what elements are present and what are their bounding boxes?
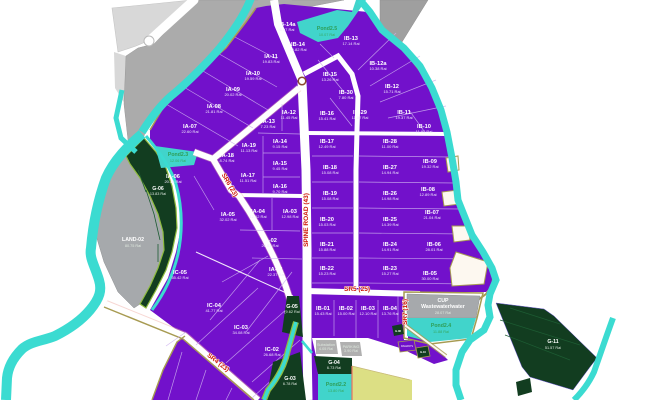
svg-text:19.32 Rai: 19.32 Rai — [421, 164, 438, 169]
svg-text:12.89 Rai: 12.89 Rai — [419, 192, 436, 197]
svg-text:9.70 Rai: 9.70 Rai — [273, 189, 288, 194]
svg-text:21.81 Rai: 21.81 Rai — [205, 109, 222, 114]
svg-text:15.23 Rai: 15.23 Rai — [318, 271, 335, 276]
svg-text:15.41 Rai: 15.41 Rai — [318, 116, 335, 121]
svg-text:9.15 Rai: 9.15 Rai — [273, 144, 288, 149]
svg-text:6.78 Rai: 6.78 Rai — [283, 382, 297, 386]
svg-text:15.71 Rai: 15.71 Rai — [383, 89, 400, 94]
svg-text:7.80 Rai: 7.80 Rai — [339, 95, 354, 100]
svg-text:12.62 Rai: 12.62 Rai — [249, 214, 266, 219]
svg-text:Pond2.5: Pond2.5 — [317, 26, 337, 32]
svg-text:10.07 Rai: 10.07 Rai — [319, 33, 335, 37]
svg-text:15.03 Rai: 15.03 Rai — [318, 222, 335, 227]
svg-text:7.23 Rai: 7.23 Rai — [261, 124, 276, 129]
svg-text:11.45 Rai: 11.45 Rai — [281, 115, 298, 120]
svg-text:Pond2.4: Pond2.4 — [431, 323, 451, 329]
svg-text:20.03 Rai: 20.03 Rai — [261, 243, 278, 248]
svg-text:21.04 Rai: 21.04 Rai — [423, 215, 440, 220]
svg-text:12.10 Rai: 12.10 Rai — [359, 311, 376, 316]
svg-text:Pond2.3: Pond2.3 — [168, 152, 188, 158]
svg-text:SR7 (16): SR7 (16) — [402, 299, 409, 325]
svg-text:G-10: G-10 — [420, 350, 426, 354]
svg-text:G-08: G-08 — [395, 329, 401, 333]
svg-text:10.38 Rai: 10.38 Rai — [369, 66, 386, 71]
svg-text:15.08 Rai: 15.08 Rai — [321, 196, 338, 201]
svg-text:Wastewater/water: Wastewater/water — [421, 304, 465, 310]
svg-text:13.26 Rai: 13.26 Rai — [321, 77, 338, 82]
svg-text:14.94 Rai: 14.94 Rai — [381, 170, 398, 175]
svg-text:19.83 Rai: 19.83 Rai — [262, 59, 279, 64]
svg-text:12.49 Rai: 12.49 Rai — [318, 144, 335, 149]
svg-text:26.68 Rai: 26.68 Rai — [263, 352, 280, 357]
svg-text:6.07 Rai: 6.07 Rai — [280, 27, 295, 32]
svg-text:28.07 Rai: 28.07 Rai — [435, 311, 451, 315]
svg-text:30.00 Rai: 30.00 Rai — [421, 276, 438, 281]
svg-text:14.91 Rai: 14.91 Rai — [381, 247, 398, 252]
svg-text:15.43 Rai: 15.43 Rai — [314, 311, 331, 316]
svg-text:12.06 Rai: 12.06 Rai — [170, 159, 186, 163]
svg-text:10.82 Rai: 10.82 Rai — [289, 47, 306, 52]
svg-text:22.37 Rai: 22.37 Rai — [267, 272, 284, 277]
svg-text:SR5 (25): SR5 (25) — [344, 286, 370, 293]
svg-text:22.60 Rai: 22.60 Rai — [181, 129, 198, 134]
svg-text:28.01 Rai: 28.01 Rai — [425, 247, 442, 252]
svg-text:19.59 Rai: 19.59 Rai — [244, 76, 261, 81]
svg-text:SPINE ROAD (43): SPINE ROAD (43) — [303, 193, 310, 247]
svg-text:3.90 Rai: 3.90 Rai — [344, 349, 358, 353]
svg-text:13.80 Rai: 13.80 Rai — [328, 389, 344, 393]
svg-text:Pond2.2: Pond2.2 — [326, 382, 346, 388]
svg-text:6.73 Rai: 6.73 Rai — [327, 366, 341, 370]
svg-text:14.39 Rai: 14.39 Rai — [381, 222, 398, 227]
svg-text:13.83 Rai: 13.83 Rai — [150, 192, 166, 196]
svg-text:11.13 Rai: 11.13 Rai — [241, 148, 258, 153]
svg-text:15.88 Rai: 15.88 Rai — [318, 247, 335, 252]
svg-text:20.02 Rai: 20.02 Rai — [224, 92, 241, 97]
svg-text:LAND-02: LAND-02 — [122, 237, 144, 243]
svg-text:RAILWAYS: RAILWAYS — [401, 345, 413, 348]
svg-text:4.05 Rai: 4.05 Rai — [319, 347, 333, 351]
svg-text:11.51 Rai: 11.51 Rai — [240, 178, 257, 183]
svg-text:11.94 Rai: 11.94 Rai — [416, 129, 433, 134]
svg-text:12.98 Rai: 12.98 Rai — [281, 214, 298, 219]
svg-text:15.27 Rai: 15.27 Rai — [381, 271, 398, 276]
svg-text:15.08 Rai: 15.08 Rai — [321, 170, 338, 175]
svg-text:(9.62 Rai: (9.62 Rai — [284, 310, 300, 314]
svg-text:13.76 Rai: 13.76 Rai — [381, 311, 398, 316]
svg-text:11.88 Rai: 11.88 Rai — [433, 330, 449, 334]
svg-text:17.14 Rai: 17.14 Rai — [342, 41, 359, 46]
svg-text:9.45 Rai: 9.45 Rai — [273, 166, 288, 171]
svg-text:55.42 Rai: 55.42 Rai — [171, 275, 188, 280]
svg-text:G-11: G-11 — [547, 339, 558, 345]
svg-text:8.74 Rai: 8.74 Rai — [220, 158, 235, 163]
svg-text:34.08 Rai: 34.08 Rai — [232, 330, 249, 335]
svg-text:80.75 Rai: 80.75 Rai — [125, 244, 141, 248]
svg-text:11.87 Rai: 11.87 Rai — [352, 115, 369, 120]
svg-text:14.98 Rai: 14.98 Rai — [381, 196, 398, 201]
svg-text:15.00 Rai: 15.00 Rai — [337, 311, 354, 316]
svg-text:11.00 Rai: 11.00 Rai — [382, 144, 399, 149]
svg-text:32.02 Rai: 32.02 Rai — [219, 217, 236, 222]
svg-text:20.18 Rai: 20.18 Rai — [164, 179, 181, 184]
svg-text:51.57 Rai: 51.57 Rai — [545, 346, 561, 350]
svg-text:41.77 Rai: 41.77 Rai — [205, 308, 222, 313]
svg-text:19.37 Rai: 19.37 Rai — [395, 115, 412, 120]
